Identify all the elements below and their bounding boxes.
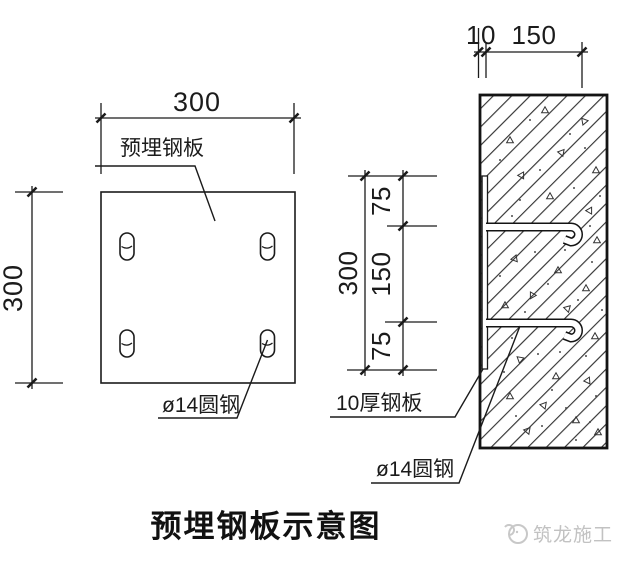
dim-top-offset-value: 75 [366,186,396,216]
anchor-symbol [120,233,134,260]
plan-plate-label-text: 预埋钢板 [120,137,204,160]
section-dim-top: 10 150 [466,20,588,88]
plan-dim-height: 300 [0,186,63,389]
section-steel-plate [482,176,487,369]
watermark-text: 筑龙施工 [533,524,613,546]
plan-view: 300 300 预埋钢板 [0,87,301,418]
plan-plate-label: 预埋钢板 [95,137,215,221]
plan-anchor-label-text: ø14圆钢 [162,394,240,417]
dim-middle-spacing-value: 150 [366,252,396,297]
dim-bottom-offset-value: 75 [366,331,396,361]
section-view: 10 150 75 150 75 300 10厚钢板 [330,20,607,483]
section-anchor-label-text: ø14圆钢 [376,458,454,481]
dim-anchor-length-value: 150 [512,20,557,50]
anchor-symbol [261,233,275,260]
plan-anchor-symbols [120,233,275,357]
dim-plate-thickness-value: 10 [466,20,496,50]
section-dim-chain: 75 150 75 300 [333,170,437,376]
anchor-symbol [120,330,134,357]
concrete-hatch [480,95,607,448]
plan-plate-outline [101,192,295,383]
embedded-plate-drawing: 300 300 预埋钢板 [0,0,637,561]
drawing-title: 预埋钢板示意图 [151,509,382,544]
section-plate-label: 10厚钢板 [330,369,483,417]
drawing-sheet: 300 300 预埋钢板 [0,0,637,561]
plan-dim-width-value: 300 [173,87,221,117]
plan-anchor-label: ø14圆钢 [158,340,268,418]
plan-dim-height-value: 300 [0,264,28,312]
watermark-logo [505,525,527,543]
section-plate-label-text: 10厚钢板 [336,392,422,415]
plan-dim-width: 300 [95,87,301,174]
dim-total-height-value: 300 [333,251,363,296]
watermark: 筑龙施工 [505,524,613,546]
